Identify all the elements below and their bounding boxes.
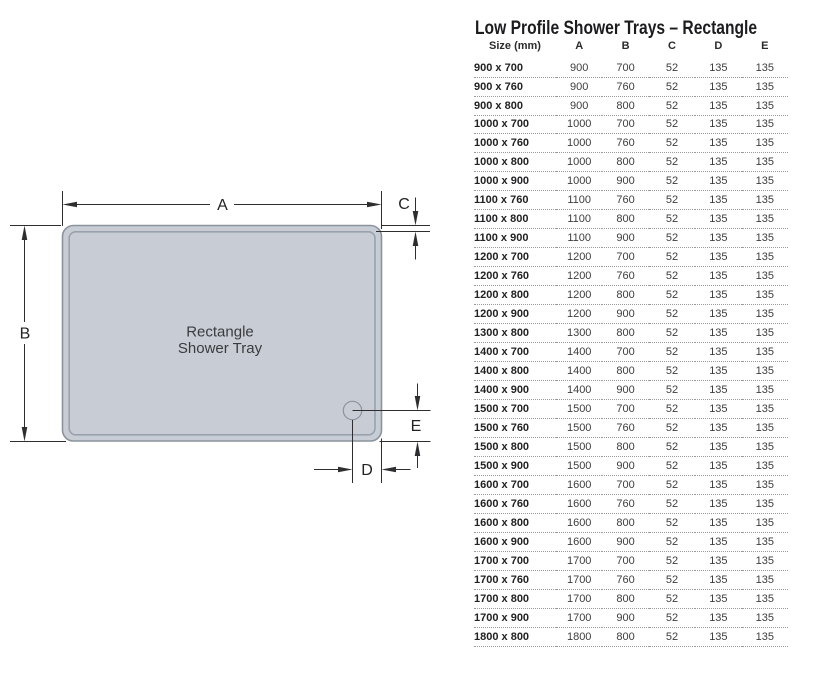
svg-text:Shower Tray: Shower Tray [178, 340, 263, 357]
svg-text:E: E [411, 418, 422, 435]
svg-text:Rectangle: Rectangle [186, 324, 254, 341]
svg-text:A: A [217, 197, 228, 214]
svg-text:C: C [398, 196, 410, 213]
svg-text:D: D [361, 462, 373, 479]
svg-text:B: B [20, 326, 31, 343]
